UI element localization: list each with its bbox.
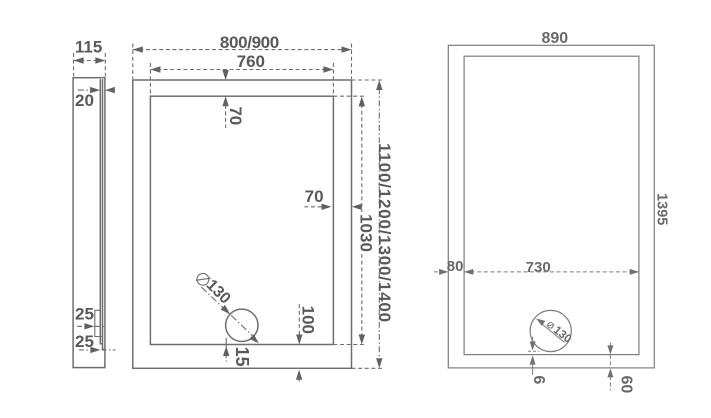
svg-text:15: 15	[232, 347, 252, 367]
svg-text:20: 20	[75, 91, 94, 110]
svg-text:1030: 1030	[356, 214, 375, 252]
svg-text:730: 730	[526, 259, 551, 276]
svg-text:60: 60	[618, 376, 635, 394]
svg-text:115: 115	[75, 38, 102, 57]
svg-text:1395: 1395	[653, 193, 669, 225]
svg-text:100: 100	[298, 306, 317, 334]
svg-text:70: 70	[226, 106, 245, 125]
svg-text:80: 80	[447, 258, 464, 275]
svg-text:70: 70	[305, 187, 324, 206]
svg-text:6: 6	[530, 375, 547, 384]
svg-text:1100/1200/1300/1400: 1100/1200/1300/1400	[375, 143, 394, 323]
svg-text:800/900: 800/900	[220, 33, 279, 52]
svg-text:25: 25	[75, 305, 94, 324]
svg-text:890: 890	[541, 30, 568, 47]
svg-text:760: 760	[237, 52, 265, 71]
